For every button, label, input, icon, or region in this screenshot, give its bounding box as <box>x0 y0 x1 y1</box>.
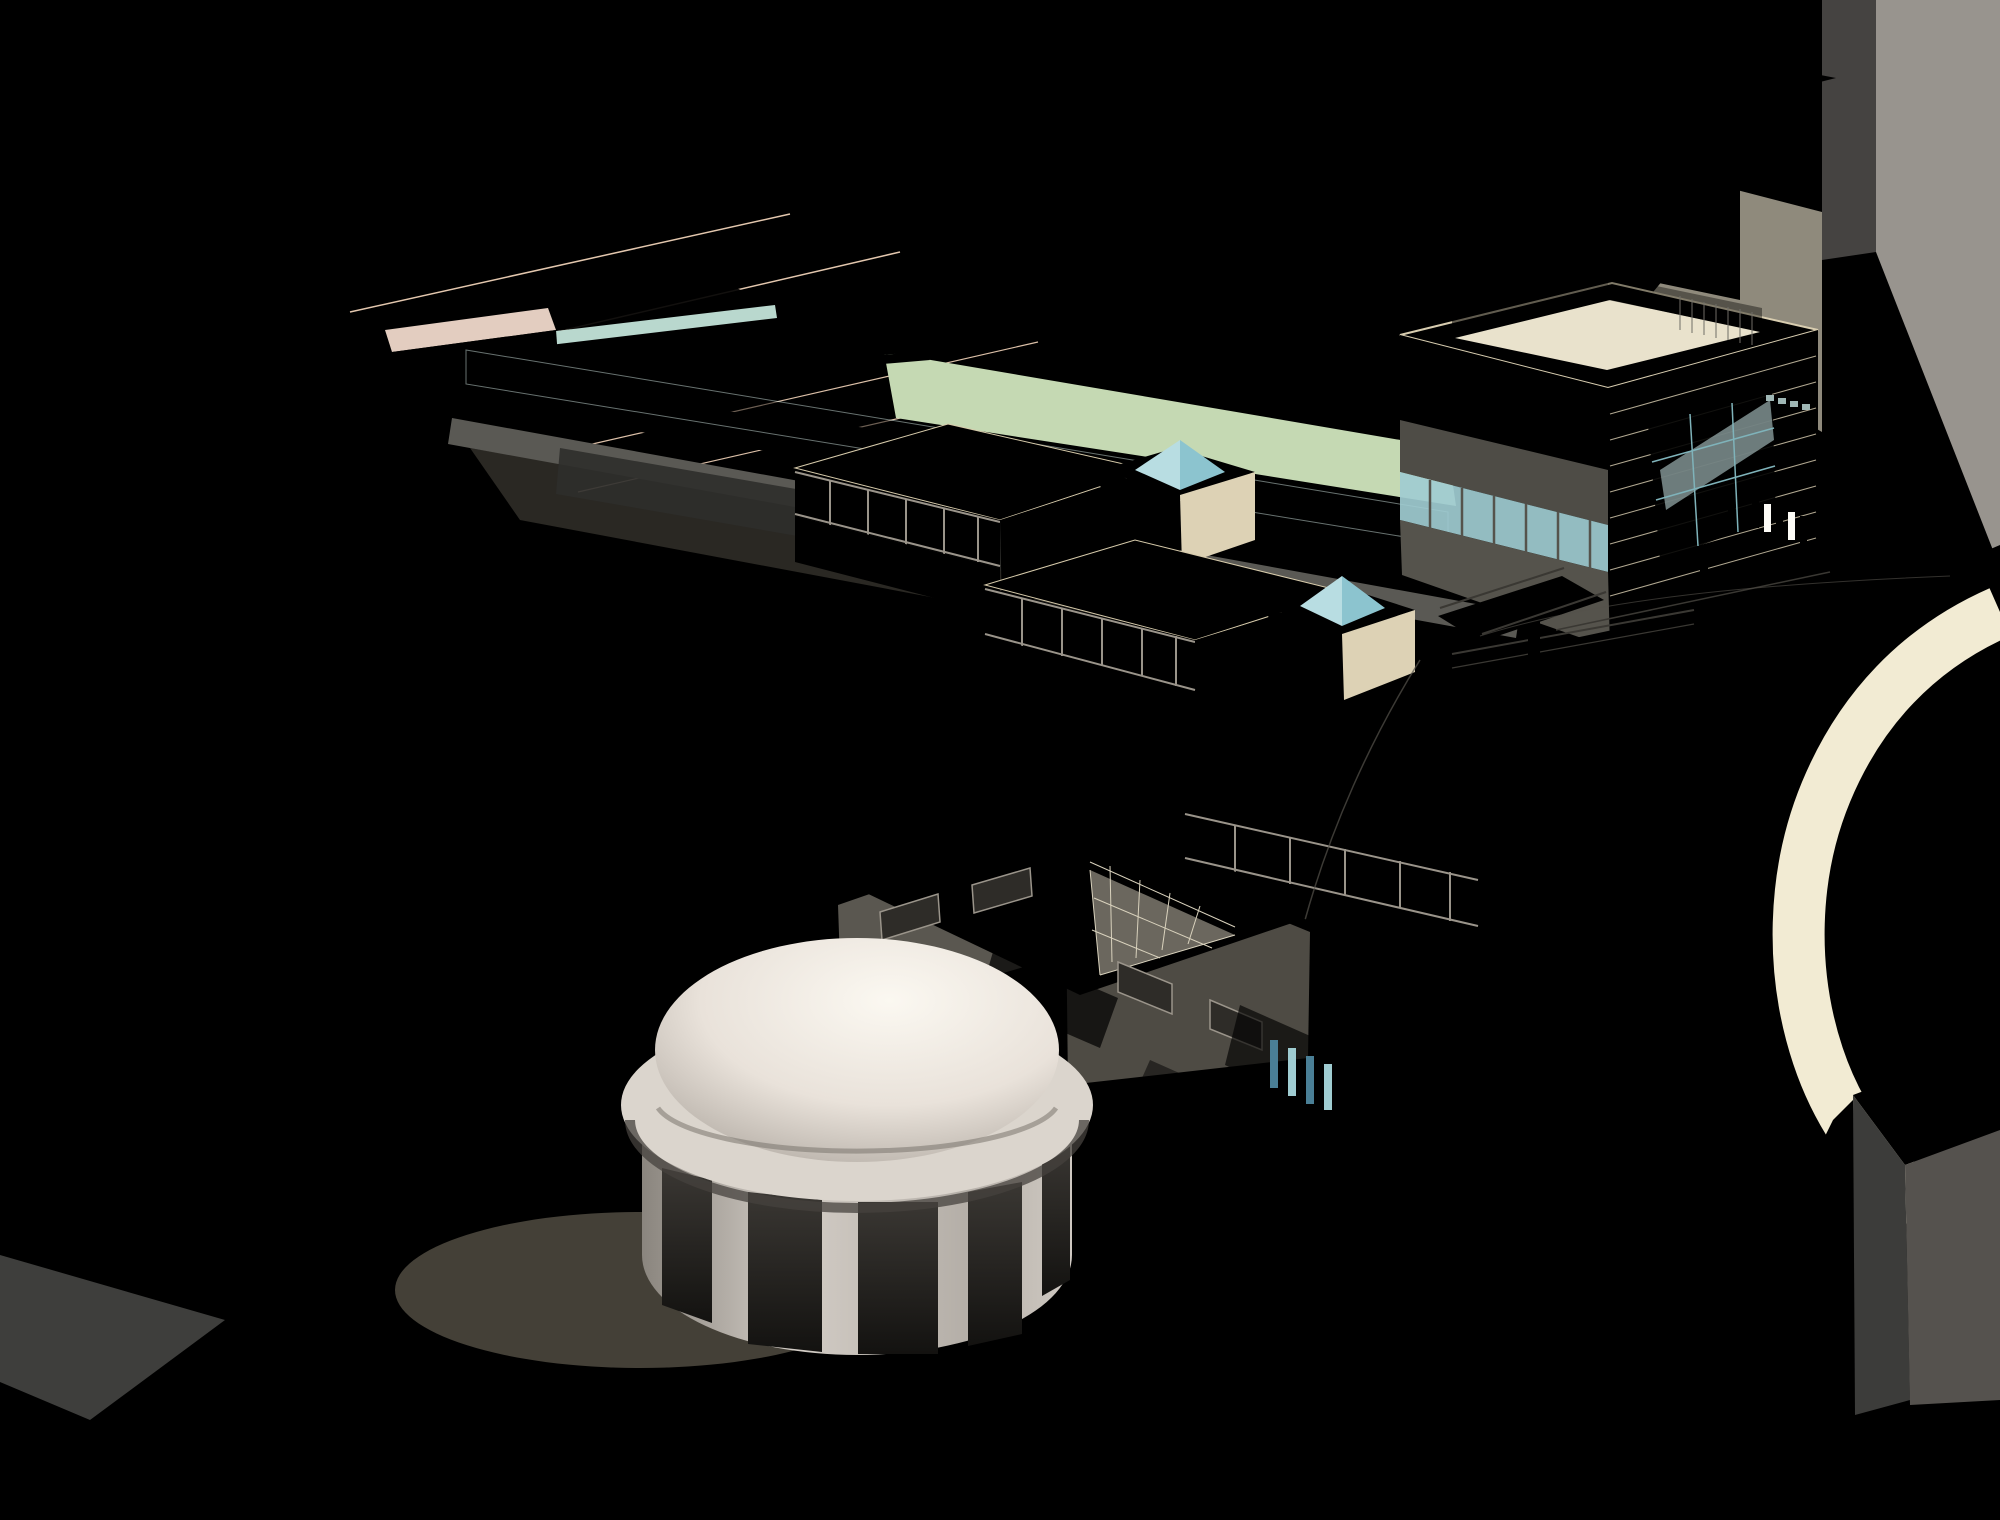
site-render <box>0 0 2000 1520</box>
dome <box>655 938 1059 1162</box>
architectural-render-canvas <box>0 0 2000 1520</box>
bridge-pier <box>1528 600 1540 666</box>
context-block <box>1905 1130 2000 1405</box>
salmon-tower-face <box>72 42 208 200</box>
context-block <box>1822 0 1876 260</box>
corner-dark-building <box>1853 1040 2000 1415</box>
